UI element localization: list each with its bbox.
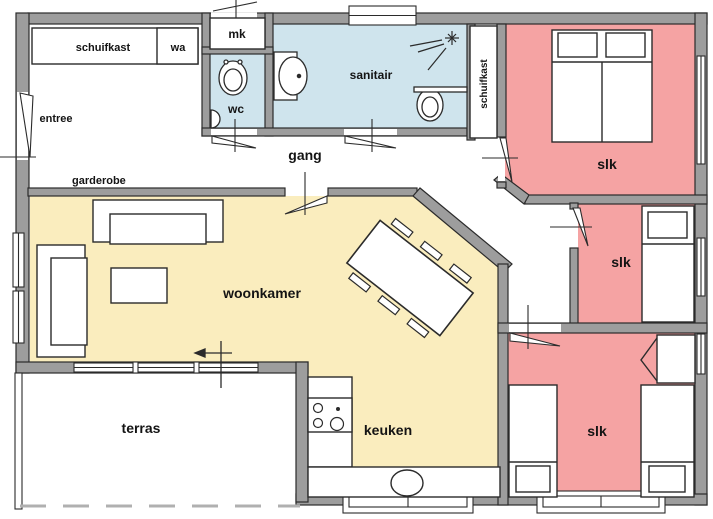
label-wc: wc — [227, 102, 244, 116]
door-gap-sanitair — [344, 129, 397, 135]
bed-pillow-bottom-right — [649, 466, 685, 492]
bed-double-pillow-left — [558, 33, 597, 57]
wall-slk-mid-left — [570, 248, 578, 327]
wall-slk-top-door-stub — [497, 182, 506, 188]
label-closet-top: schuifkast — [76, 42, 131, 54]
wall-closet-slk — [497, 24, 506, 137]
toilet-sanitair-bowl — [422, 97, 438, 117]
wall-mk-wc-left — [202, 13, 210, 136]
window-sliding-post-2 — [194, 362, 199, 373]
label-woonkamer: woonkamer — [222, 285, 301, 301]
label-terras: terras — [122, 420, 161, 436]
door-gap-slk-bottom — [509, 324, 561, 332]
kitchen-sink-icon — [391, 470, 423, 496]
window-sliding-post-1 — [133, 362, 138, 373]
toilet-wc-bowl — [224, 69, 242, 91]
floor-plan-svg: schuifkast wa mk wc sanitair schuifkast … — [0, 0, 713, 519]
label-slk-top: slk — [597, 156, 617, 172]
label-entree: entree — [39, 113, 72, 125]
bed-pillow-bottom-left — [516, 466, 550, 492]
terras-railing — [15, 373, 22, 509]
label-wa: wa — [170, 42, 187, 54]
bed-single-slk-mid-pillow — [648, 212, 687, 238]
floor-plan-page: schuifkast wa mk wc sanitair schuifkast … — [0, 0, 713, 519]
label-slk-mid: slk — [611, 254, 631, 270]
label-closet-right: schuifkast — [479, 59, 490, 109]
label-garderobe: garderobe — [72, 175, 126, 187]
kitchen-stove-box — [308, 398, 352, 432]
wall-slk-top-bottom — [525, 195, 707, 204]
wall-wc-sanitair — [265, 13, 273, 136]
label-gang: gang — [288, 147, 321, 163]
wall-keuken-left — [296, 362, 308, 502]
wall-gang-woonkamer — [328, 188, 417, 196]
basin-sanitair-drain — [297, 74, 300, 77]
partition-sanitair — [414, 87, 467, 92]
label-sanitair: sanitair — [350, 68, 393, 82]
toilet-wc-hinge-right — [238, 60, 242, 64]
door-leaf-sanitair — [345, 136, 396, 148]
bed-double-pillow-right — [606, 33, 645, 57]
label-keuken: keuken — [364, 422, 412, 438]
closet-slk-bottom — [657, 335, 695, 383]
coffee-table — [111, 268, 167, 303]
basin-sanitair-bowl — [279, 57, 307, 95]
door-leaf-wc — [212, 136, 256, 148]
wall-garderobe — [28, 188, 285, 196]
sofa-left-seat — [51, 258, 87, 345]
door-leaf-mk — [213, 2, 257, 11]
label-mk: mk — [228, 27, 246, 41]
label-slk-bottom: slk — [587, 423, 607, 439]
sofa-top-seat — [110, 214, 206, 244]
toilet-wc-hinge-left — [224, 60, 228, 64]
door-gap-wc — [211, 129, 257, 135]
door-gap-woonkamer — [286, 189, 327, 195]
stove-burner-4 — [337, 408, 340, 411]
